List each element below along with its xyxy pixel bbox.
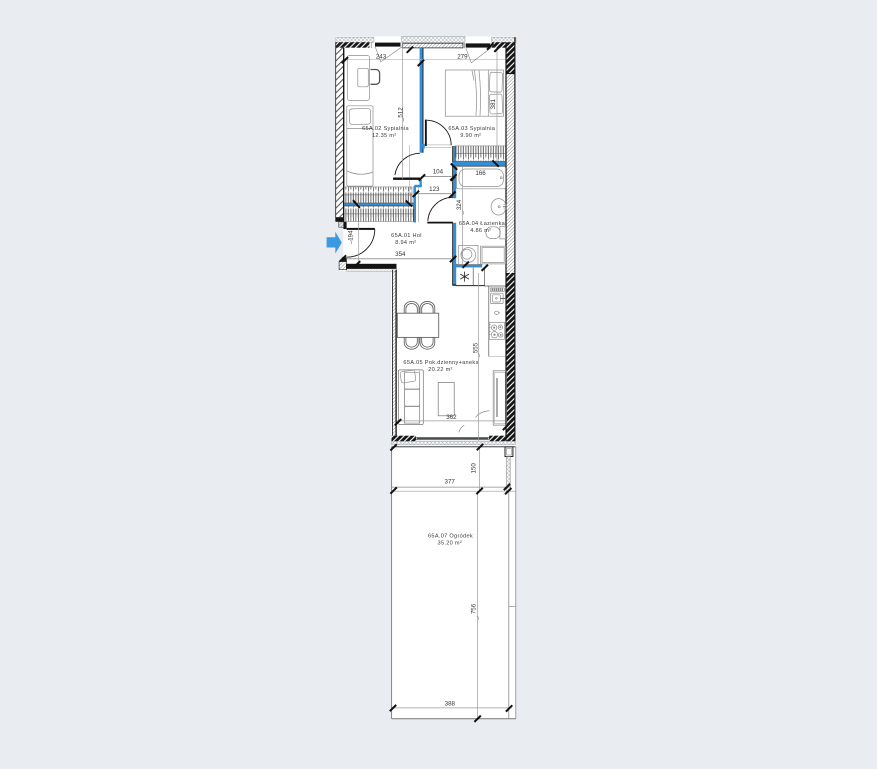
svg-text:65A.04 Łazienka: 65A.04 Łazienka	[459, 221, 506, 227]
svg-text:8.94 m²: 8.94 m²	[395, 240, 416, 246]
svg-text:512: 512	[397, 107, 404, 118]
svg-text:12.35 m²: 12.35 m²	[372, 133, 396, 139]
svg-text:166: 166	[475, 170, 486, 177]
svg-text:9.90 m²: 9.90 m²	[460, 133, 481, 139]
svg-text:279: 279	[457, 53, 468, 60]
svg-text:362: 362	[446, 414, 457, 421]
svg-text:4.86 m²: 4.86 m²	[470, 228, 491, 234]
svg-text:555: 555	[472, 342, 479, 353]
svg-text:243: 243	[376, 53, 387, 60]
svg-text:65A.01 Hol: 65A.01 Hol	[391, 233, 422, 239]
svg-text:377: 377	[445, 478, 456, 485]
svg-text:150: 150	[470, 463, 477, 474]
svg-text:35.20 m²: 35.20 m²	[438, 541, 462, 547]
svg-text:65A.02 Sypialnia: 65A.02 Sypialnia	[362, 126, 409, 132]
svg-text:65A.07 Ogródek: 65A.07 Ogródek	[428, 533, 473, 539]
svg-text:65A.03 Sypialnia: 65A.03 Sypialnia	[448, 126, 495, 132]
svg-text:756: 756	[470, 603, 477, 614]
svg-text:20.22 m²: 20.22 m²	[428, 367, 452, 373]
svg-text:123: 123	[429, 186, 440, 193]
svg-text:65A.05 Pok.dzienny+aneks: 65A.05 Pok.dzienny+aneks	[403, 360, 478, 366]
svg-text:194: 194	[348, 230, 355, 241]
svg-text:381: 381	[490, 98, 497, 109]
svg-text:354: 354	[395, 251, 406, 258]
svg-text:324: 324	[456, 199, 463, 210]
svg-text:104: 104	[433, 169, 444, 176]
svg-text:388: 388	[445, 701, 456, 708]
